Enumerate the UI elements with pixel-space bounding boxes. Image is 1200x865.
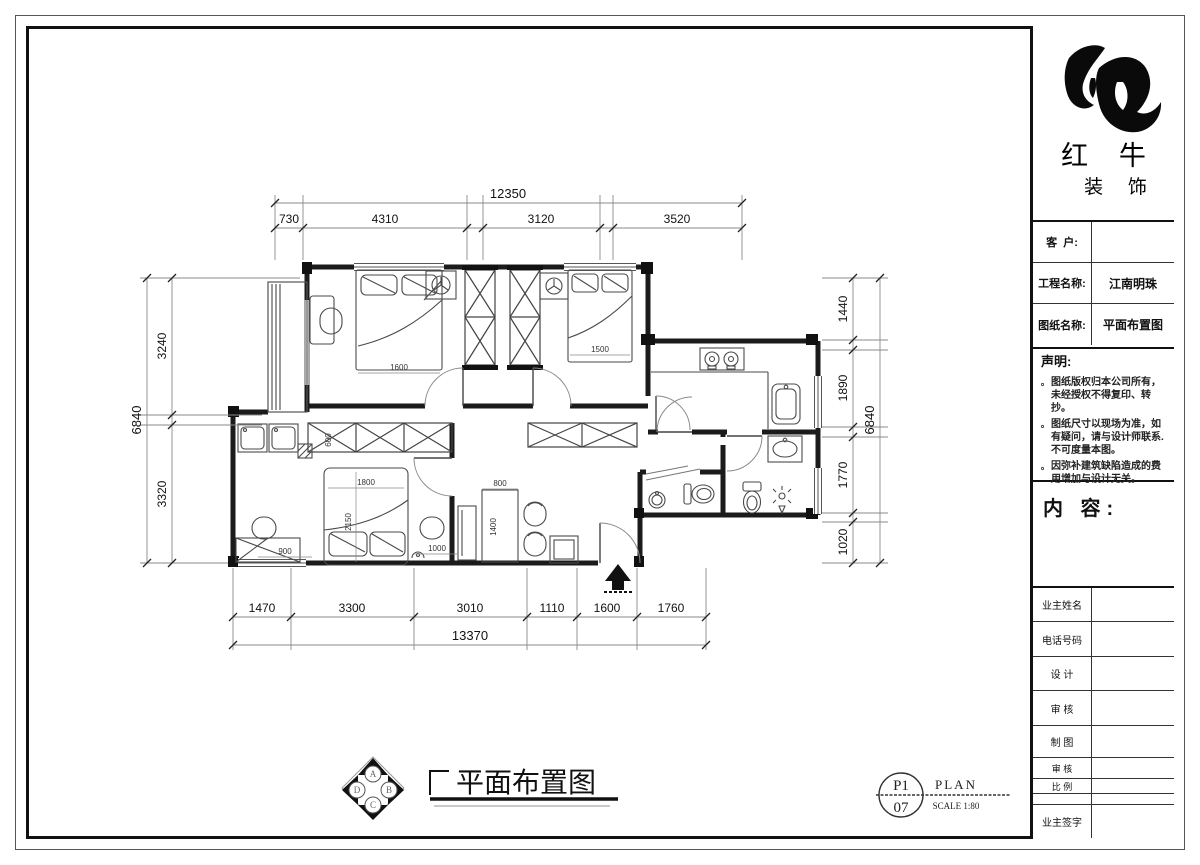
svg-text:600: 600 (324, 433, 333, 447)
entry-arrow-icon (604, 564, 632, 592)
svg-text:3010: 3010 (457, 601, 484, 615)
svg-text:800: 800 (493, 479, 507, 488)
content-section: 内 容: (1033, 482, 1174, 588)
svg-text:SCALE 1:80: SCALE 1:80 (933, 801, 980, 811)
client-value (1092, 222, 1174, 262)
signoff-row-owner-signature: 业主签字 (1033, 805, 1174, 838)
info-fields: 客 户: 工程名称: 江南明珠 图纸名称: 平面布置图 (1033, 220, 1174, 349)
svg-text:12350: 12350 (490, 186, 526, 201)
brand-subname: 装 饰 (1067, 172, 1174, 199)
brand-name: 红 牛 (1033, 134, 1174, 173)
content-label: 内 容: (1043, 492, 1174, 521)
doors (414, 368, 762, 563)
svg-text:4310: 4310 (372, 212, 399, 226)
statement-section: 声明: 。 图纸版权归本公司所有，未经授权不得复印、转抄。 。 图纸尺寸以现场为… (1033, 345, 1174, 482)
drawing-title-block: A B C D 平面布置图 (342, 757, 618, 820)
signoff-row-review2: 审 核 (1033, 758, 1174, 779)
svg-text:1440: 1440 (836, 295, 850, 322)
statement-item: 。 图纸版权归本公司所有，未经授权不得复印、转抄。 (1041, 376, 1170, 415)
drawing-title-text: 平面布置图 (456, 767, 596, 799)
svg-text:1800: 1800 (357, 478, 375, 487)
project-value: 江南明珠 (1092, 263, 1174, 303)
statement-item: 。 图纸尺寸以现场为准，如有疑问，请与设计师联系.不可度量本图。 (1041, 418, 1170, 457)
svg-text:1760: 1760 (658, 601, 685, 615)
statement-title: 声明: (1041, 351, 1170, 370)
signoff-row-drafting: 制 图 (1033, 726, 1174, 758)
master-bedroom-furniture (236, 468, 444, 565)
svg-text:3300: 3300 (339, 601, 366, 615)
svg-text:6840: 6840 (129, 406, 144, 435)
svg-text:C: C (370, 800, 376, 810)
svg-text:B: B (386, 785, 392, 795)
svg-text:1400: 1400 (489, 518, 498, 536)
client-label: 客 户: (1033, 222, 1092, 262)
signoff-row-phone: 电话号码 (1033, 622, 1174, 657)
exterior-walls (233, 267, 818, 563)
svg-text:3520: 3520 (664, 212, 691, 226)
svg-text:A: A (370, 769, 377, 779)
svg-text:1470: 1470 (249, 601, 276, 615)
svg-text:D: D (354, 785, 361, 795)
signoff-row-review: 审 核 (1033, 691, 1174, 726)
signoff-table: 业主姓名 电话号码 设 计 审 核 制 图 审 核 比 例 (1033, 588, 1174, 838)
svg-text:1600: 1600 (594, 601, 621, 615)
kitchen-fixtures (651, 348, 800, 429)
svg-text:730: 730 (279, 212, 299, 226)
balcony (268, 282, 307, 412)
dimension-lines (140, 195, 888, 650)
wall-columns (228, 262, 818, 567)
svg-text:3320: 3320 (155, 480, 169, 507)
dining-furniture (458, 490, 578, 563)
svg-text:3240: 3240 (155, 332, 169, 359)
bull-logo-icon (1065, 45, 1161, 132)
sheet-name-value: 平面布置图 (1092, 304, 1174, 345)
bullet-marker: 。 (1041, 376, 1051, 415)
bullet-marker: 。 (1041, 418, 1051, 457)
signoff-row-design: 设 计 (1033, 657, 1174, 691)
field-row-project: 工程名称: 江南明珠 (1033, 263, 1174, 304)
sheet-number-mark: P1 07 PLAN SCALE 1:80 (876, 773, 1010, 817)
svg-text:1020: 1020 (836, 528, 850, 555)
svg-text:1500: 1500 (591, 345, 609, 354)
interior-walls (307, 345, 818, 563)
svg-text:1770: 1770 (836, 461, 850, 488)
drawing-sheet: 1600 1500 1800 2150 600 900 1000 800 140… (0, 0, 1200, 865)
svg-text:13370: 13370 (452, 628, 488, 643)
svg-text:1000: 1000 (428, 544, 446, 553)
signoff-row-owner-name: 业主姓名 (1033, 588, 1174, 622)
field-row-client: 客 户: (1033, 222, 1174, 263)
compass-icon: A B C D (342, 757, 404, 820)
bedroom1-furniture (310, 270, 456, 370)
signoff-row-empty (1033, 794, 1174, 805)
svg-text:1110: 1110 (540, 601, 565, 615)
statement-text: 图纸尺寸以现场为准，如有疑问，请与设计师联系.不可度量本图。 (1051, 418, 1170, 457)
floor-plan-drawing: 1600 1500 1800 2150 600 900 1000 800 140… (0, 0, 1030, 865)
bedroom2-furniture (540, 270, 632, 362)
svg-text:2150: 2150 (344, 513, 353, 531)
project-label: 工程名称: (1033, 263, 1092, 303)
signoff-row-scale: 比 例 (1033, 779, 1174, 794)
field-row-sheet-name: 图纸名称: 平面布置图 (1033, 304, 1174, 345)
windows (238, 262, 823, 568)
svg-text:900: 900 (278, 547, 292, 556)
wardrobes (308, 270, 637, 452)
svg-text:1600: 1600 (390, 363, 408, 372)
title-block: 红 牛 装 饰 客 户: 工程名称: 江南明珠 图纸名称: 平面布置图 声明: … (1030, 26, 1174, 839)
svg-text:6840: 6840 (862, 406, 877, 435)
statement-text: 图纸版权归本公司所有，未经授权不得复印、转抄。 (1051, 376, 1170, 415)
laundry-appliances (238, 424, 312, 458)
svg-text:P1: P1 (893, 778, 909, 794)
svg-text:PLAN: PLAN (935, 777, 977, 792)
svg-text:07: 07 (894, 800, 910, 816)
svg-text:3120: 3120 (528, 212, 555, 226)
svg-text:1890: 1890 (836, 374, 850, 401)
sheet-name-label: 图纸名称: (1033, 304, 1092, 345)
